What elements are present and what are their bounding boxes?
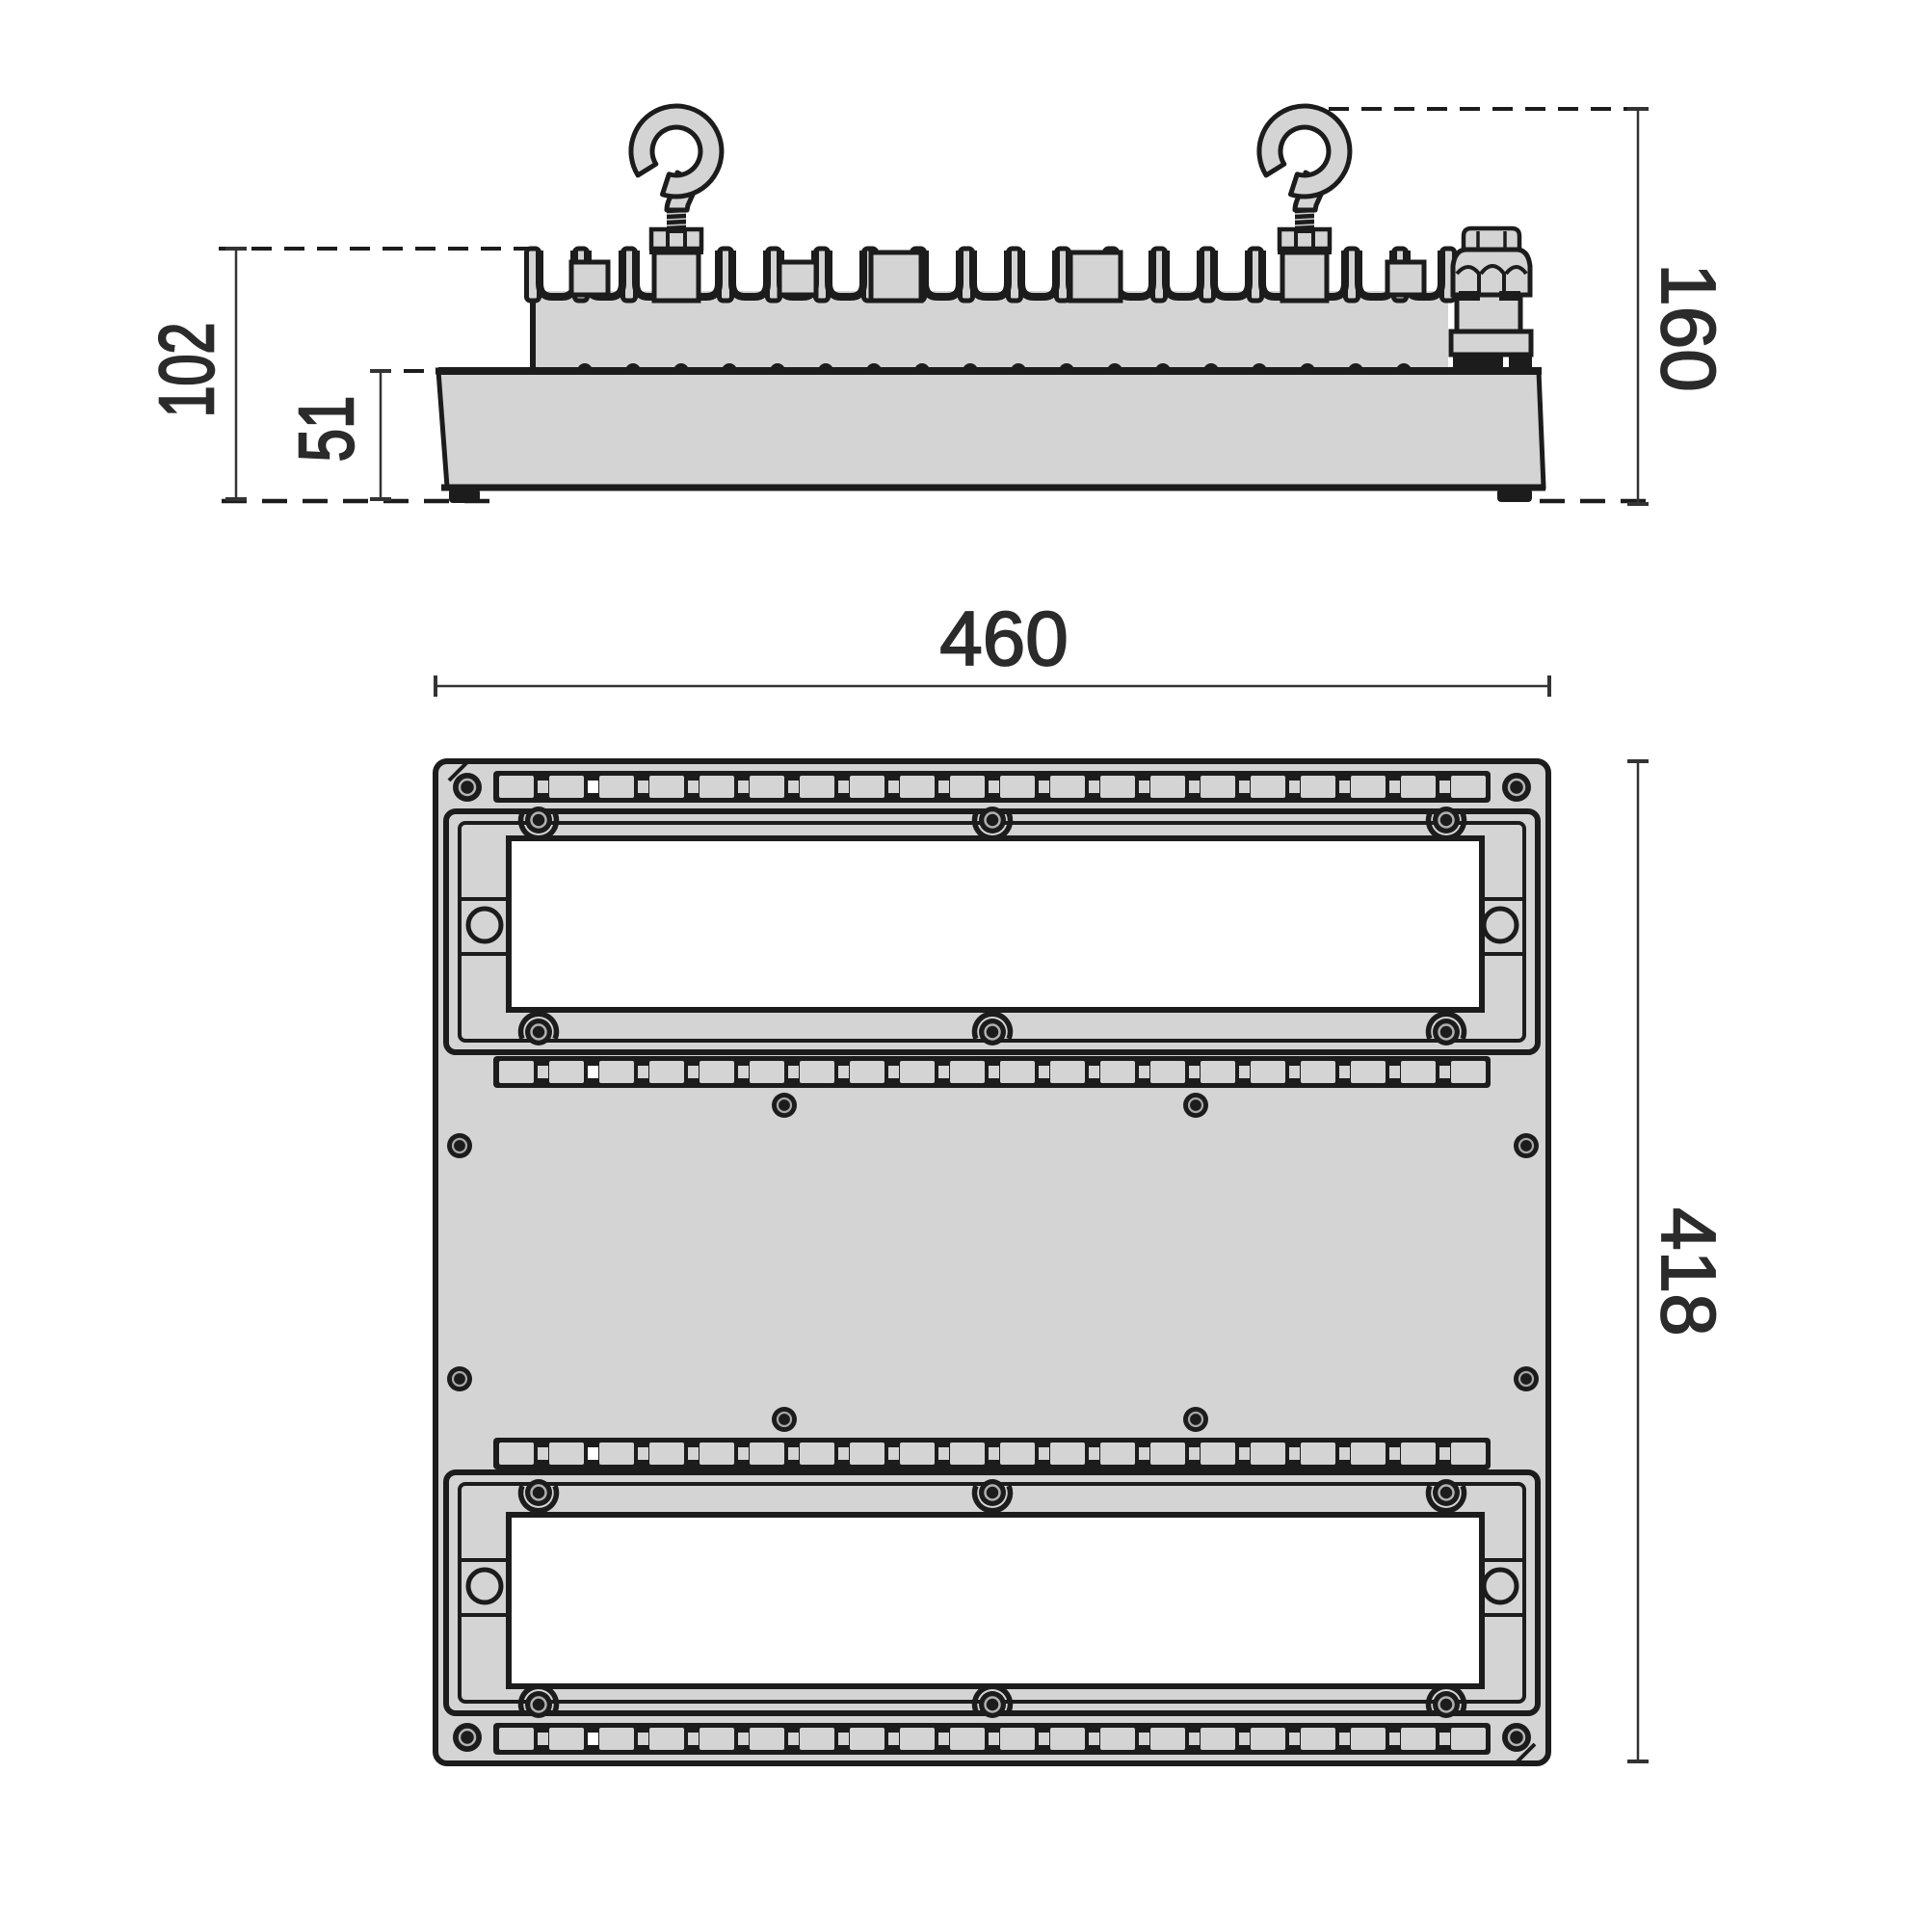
svg-text:160: 160 xyxy=(1646,263,1731,391)
svg-text:418: 418 xyxy=(1646,1207,1731,1336)
svg-text:51: 51 xyxy=(283,396,370,463)
svg-text:102: 102 xyxy=(143,323,229,418)
svg-text:460: 460 xyxy=(939,595,1068,681)
